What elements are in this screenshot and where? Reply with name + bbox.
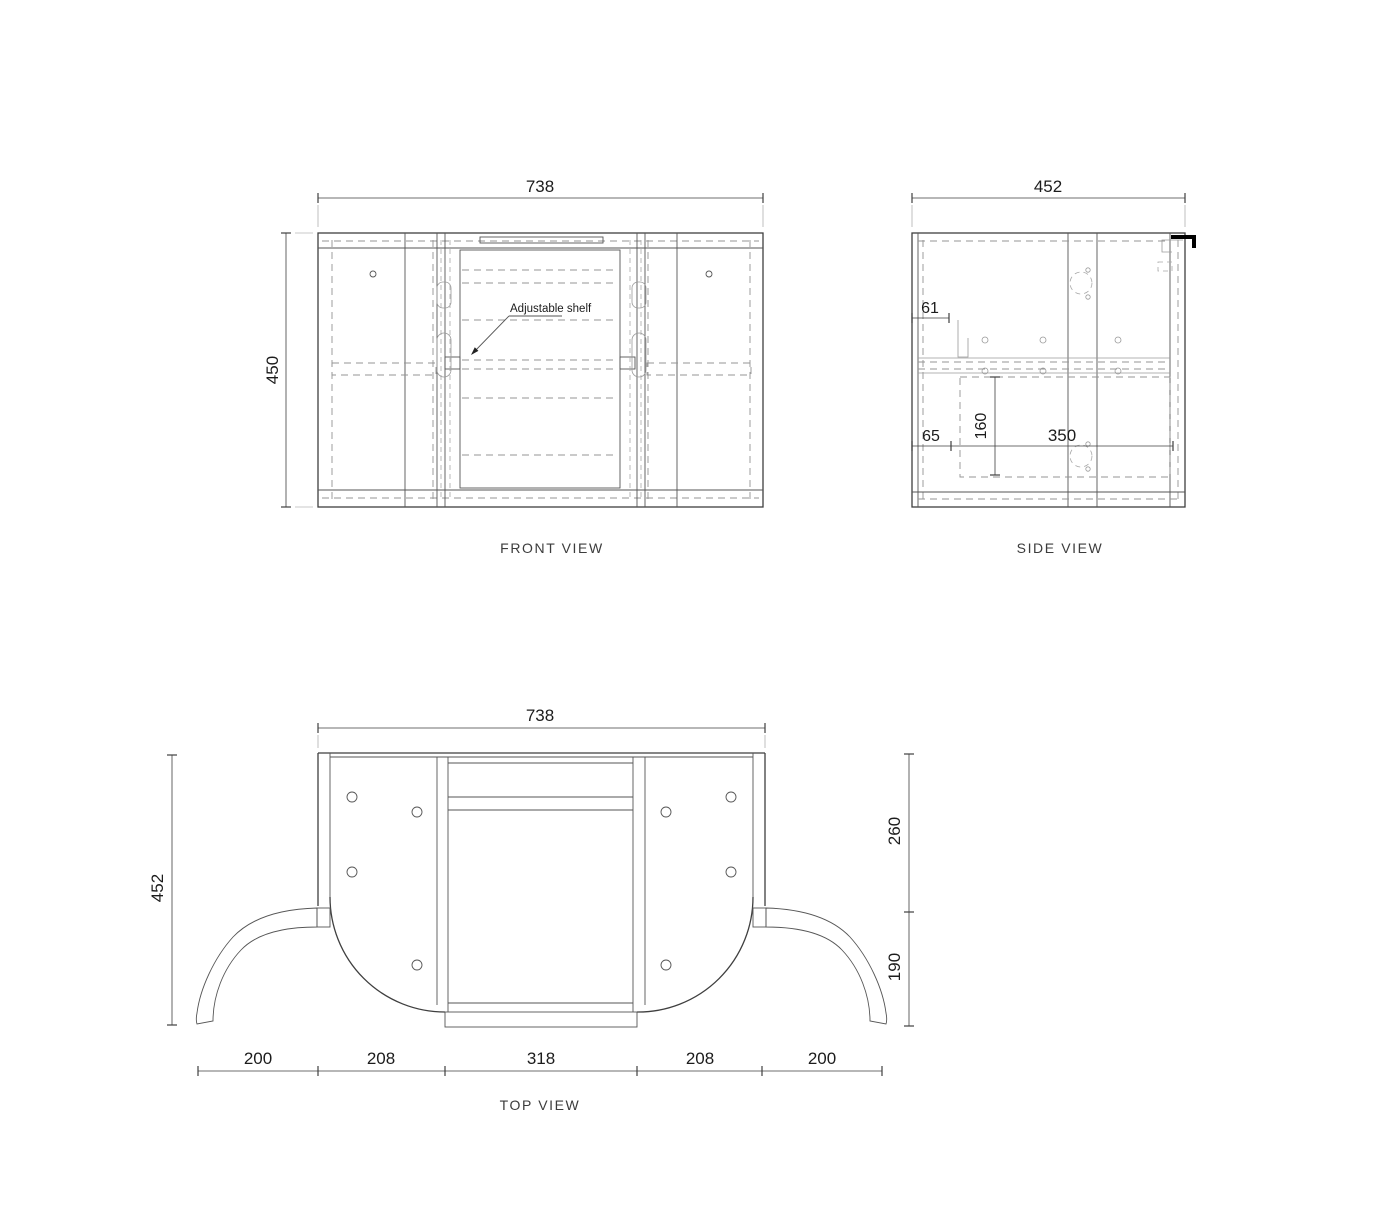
front-height-dimension: 450 (263, 233, 313, 507)
front-width-dimension: 738 (318, 177, 763, 227)
front-left-door (332, 233, 436, 507)
hinge-cup-right-upper (632, 282, 646, 308)
top-bottom-dimensions: 200 208 318 208 200 (198, 1049, 882, 1076)
top-view: 738 452 260 190 200 208 (148, 706, 914, 1113)
top-right-corner-curve (637, 897, 753, 1012)
rail-bracket-section (958, 320, 968, 357)
side-width-dimension: 452 (912, 177, 1185, 227)
center-door-front (445, 1012, 637, 1027)
right-door-hidden-shelf (647, 363, 751, 375)
top-bottom-dim-4: 208 (686, 1049, 714, 1068)
top-cabinet-body (318, 753, 765, 1027)
side-view: 452 (912, 177, 1194, 556)
left-door-attachment (317, 908, 330, 927)
shelf-support-right (620, 357, 635, 369)
top-bottom-dim-1: 200 (244, 1049, 272, 1068)
left-door-hidden-shelf (332, 363, 436, 375)
right-door-pin-hole (706, 271, 712, 277)
top-right-upper-dim-text: 260 (885, 817, 904, 845)
top-left-corner-curve (330, 897, 445, 1012)
left-open-door (196, 908, 317, 1024)
side-span-dim-text: 350 (1048, 426, 1076, 445)
right-open-door (766, 908, 887, 1024)
front-height-dim-text: 450 (263, 356, 282, 384)
hinge-cup-left-lower (437, 333, 451, 377)
top-view-label: TOP VIEW (500, 1097, 581, 1113)
front-view: 738 450 (263, 177, 763, 556)
top-width-dim-text: 738 (526, 706, 554, 725)
top-right-lower-dim-text: 190 (885, 953, 904, 981)
front-width-dim-text: 738 (526, 177, 554, 196)
side-offset-dim-text: 65 (922, 428, 940, 445)
left-door-pin-hole (370, 271, 376, 277)
top-bottom-dim-5: 200 (808, 1049, 836, 1068)
front-center-section (437, 237, 646, 500)
cabinet-drawing-svg: 738 450 (0, 0, 1400, 1218)
top-width-dimension: 738 (318, 706, 765, 748)
top-right-dimensions: 260 190 (885, 754, 914, 1026)
side-width-dim-text: 452 (1034, 177, 1062, 196)
front-view-label: FRONT VIEW (500, 540, 604, 556)
hinge-cup-right-lower (632, 333, 646, 377)
shelf-note-text: Adjustable shelf (510, 303, 592, 315)
side-shelf-drop-dimension: 160 (973, 377, 1000, 475)
top-slot (480, 237, 603, 243)
wall-mount-bracket (1158, 237, 1194, 271)
side-cabinet-body (912, 233, 1194, 507)
mount-hook-icon (1171, 237, 1194, 248)
front-right-door (647, 233, 751, 507)
right-door-attachment (753, 908, 766, 927)
top-depth-dim-text: 452 (148, 874, 167, 902)
top-bottom-dim-3: 318 (527, 1049, 555, 1068)
top-depth-dimension: 452 (148, 755, 177, 1025)
technical-drawing-page: 738 450 (0, 0, 1400, 1218)
top-bottom-dim-2: 208 (367, 1049, 395, 1068)
hinge-cup-left-upper (437, 282, 451, 308)
adjustable-shelf-annotation: Adjustable shelf (471, 303, 592, 355)
shelf-support-left (445, 357, 460, 369)
side-shelf-drop-dim-text: 160 (973, 413, 990, 440)
side-offset-span-dimension: 65 350 (912, 426, 1173, 451)
side-view-label: SIDE VIEW (1017, 540, 1104, 556)
top-open-doors (196, 908, 887, 1024)
front-cabinet-body (318, 233, 763, 507)
side-rail-dim-text: 61 (921, 300, 939, 317)
